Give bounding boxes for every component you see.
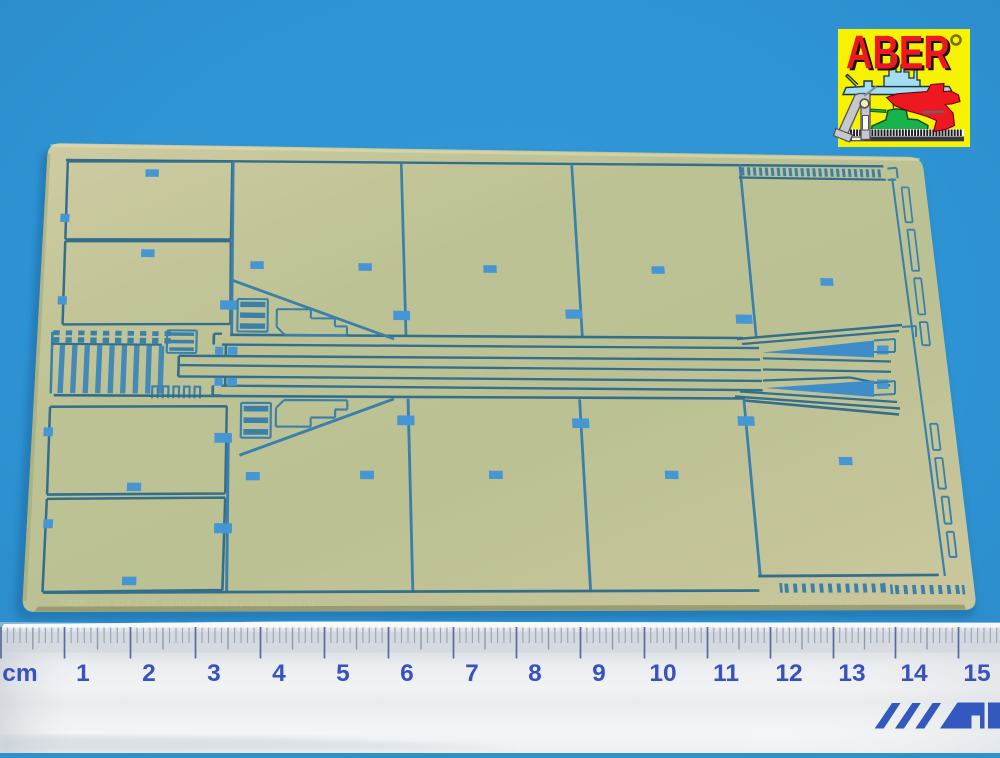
svg-text:ABER 1:35 S24 SIDE SKIRTS for: ABER 1:35 S24 SIDE SKIRTS for Pz.Kpfw.II…: [60, 598, 314, 608]
svg-text:15: 15: [963, 660, 990, 687]
svg-text:7: 7: [465, 660, 479, 687]
svg-text:12: 12: [775, 660, 802, 687]
svg-text:8: 8: [528, 660, 542, 687]
svg-text:3: 3: [207, 660, 221, 687]
svg-text:9: 9: [592, 660, 606, 687]
svg-text:cm: cm: [2, 660, 37, 687]
svg-text:13: 13: [838, 660, 865, 687]
svg-text:ABER: ABER: [846, 26, 950, 78]
svg-text:4: 4: [272, 660, 286, 687]
svg-text:2: 2: [142, 660, 156, 687]
svg-text:11: 11: [713, 660, 739, 687]
svg-text:1: 1: [76, 660, 90, 687]
svg-text:10: 10: [649, 660, 676, 687]
svg-text:14: 14: [900, 660, 928, 687]
svg-text:5: 5: [336, 660, 350, 687]
svg-text:W.&J. BROZYNA 04.2004: W.&J. BROZYNA 04.2004: [758, 598, 866, 608]
svg-text:6: 6: [400, 660, 414, 687]
